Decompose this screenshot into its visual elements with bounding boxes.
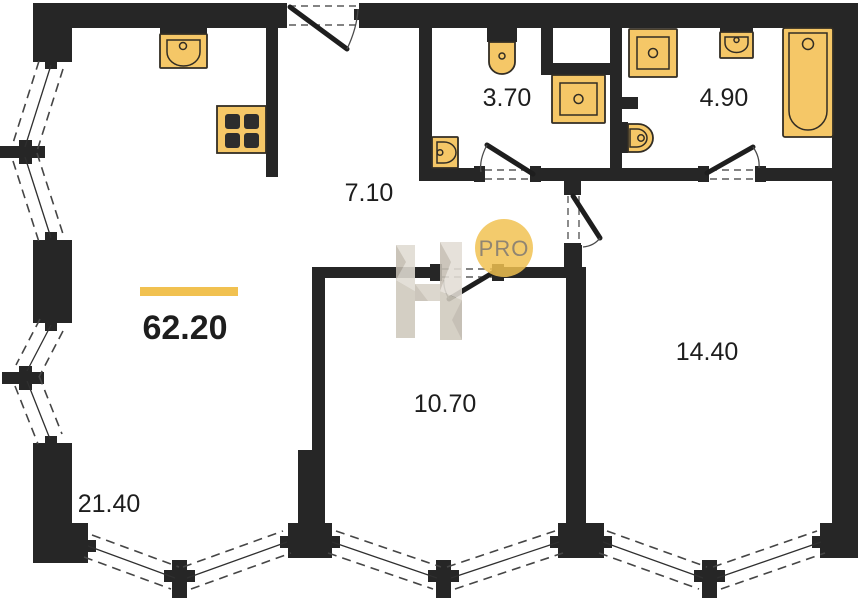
wall-segment [812, 536, 820, 548]
wall-segment [604, 536, 612, 548]
window-glass [27, 325, 51, 371]
wall-sink-icon [432, 137, 458, 168]
door-leaf [573, 196, 600, 238]
toilet-icon [487, 28, 517, 74]
wall-segment [558, 523, 604, 558]
room-area-bedroom-small: 10.70 [414, 390, 477, 418]
wall-segment [419, 168, 482, 181]
machine-body [629, 29, 677, 77]
window-edge [37, 69, 63, 151]
window-glass [25, 65, 51, 147]
bathroom-large-door [698, 147, 766, 182]
wall-segment [820, 523, 858, 558]
window-pier [45, 436, 57, 443]
wall-segment [312, 278, 325, 450]
hand-sink-icon [720, 28, 753, 58]
total-area-label: 62.20 [142, 309, 227, 347]
tub-body [783, 28, 833, 137]
door-swing-arc [583, 238, 600, 247]
window-pier [33, 240, 72, 323]
kitchen-sink-icon [160, 28, 207, 68]
window-edge [37, 153, 63, 234]
washing-machine-2-icon [629, 29, 677, 77]
window-pier [33, 523, 88, 563]
wall-segment [359, 3, 858, 28]
wall-segment [419, 28, 432, 181]
wall-segment [764, 168, 858, 181]
window-edge [13, 161, 39, 242]
window-glass [88, 546, 175, 578]
wall-segment [288, 523, 332, 558]
window-pier [45, 323, 57, 331]
wall-segment [33, 3, 72, 62]
wall-segment [298, 450, 325, 523]
toilet-bowl [489, 42, 515, 74]
window-edge [16, 319, 40, 365]
wall-segment [533, 168, 706, 181]
wall-segment [610, 28, 622, 181]
wall-segment [312, 267, 441, 278]
toilet-bowl [628, 124, 653, 152]
wall-segment [622, 97, 638, 109]
bathtub-icon [783, 28, 833, 137]
window-edge [39, 376, 62, 434]
window-glass [27, 381, 50, 439]
door-jamb [564, 181, 581, 195]
door-jamb [474, 166, 485, 182]
floor-plan-page: PRO 62.20 21.40 7.10 3.70 4.90 10.70 14.… [0, 0, 860, 600]
window-edge [92, 535, 179, 567]
door-jamb [564, 243, 581, 257]
door-leaf [290, 7, 347, 49]
stove-burner [244, 114, 259, 129]
window-glass [25, 157, 51, 238]
stove-burner [225, 114, 240, 129]
total-area-underline [140, 287, 238, 296]
stove-burner [244, 133, 259, 148]
window-edge [39, 331, 63, 377]
stove-burner [225, 133, 240, 148]
toilet-tank [487, 28, 517, 42]
toilet-2-icon [628, 124, 653, 152]
watermark-logo [396, 242, 462, 340]
door-swing-arc [753, 147, 759, 168]
shaft-wall [541, 28, 553, 66]
wall-segment [550, 536, 558, 548]
pro-badge: PRO [475, 219, 533, 277]
room-area-bedroom-large: 14.40 [676, 338, 739, 366]
window-edge [13, 61, 39, 143]
room-area-hallway: 7.10 [345, 179, 394, 207]
door-leaf [707, 147, 753, 173]
window-edge [15, 386, 38, 444]
bathroom-small-door [474, 145, 541, 182]
toilet-block [610, 122, 628, 153]
wall-segment [566, 267, 586, 523]
room-area-bathroom-large: 4.90 [700, 84, 749, 112]
window-edge [84, 557, 171, 589]
wall-segment [832, 28, 858, 525]
washing-machine-icon [552, 75, 605, 123]
pro-badge-label: PRO [479, 236, 530, 261]
entry-door [289, 6, 362, 49]
room-area-bathroom-small: 3.70 [483, 84, 532, 112]
wall-segment [266, 28, 278, 177]
stove-icon [217, 106, 266, 153]
room-area-living-room: 21.40 [78, 490, 141, 518]
door-jamb [755, 166, 766, 182]
shaft-wall [541, 63, 610, 75]
floor-plan-drawing: PRO 62.20 21.40 7.10 3.70 4.90 10.70 14.… [0, 0, 860, 600]
window-mullion [19, 366, 32, 390]
